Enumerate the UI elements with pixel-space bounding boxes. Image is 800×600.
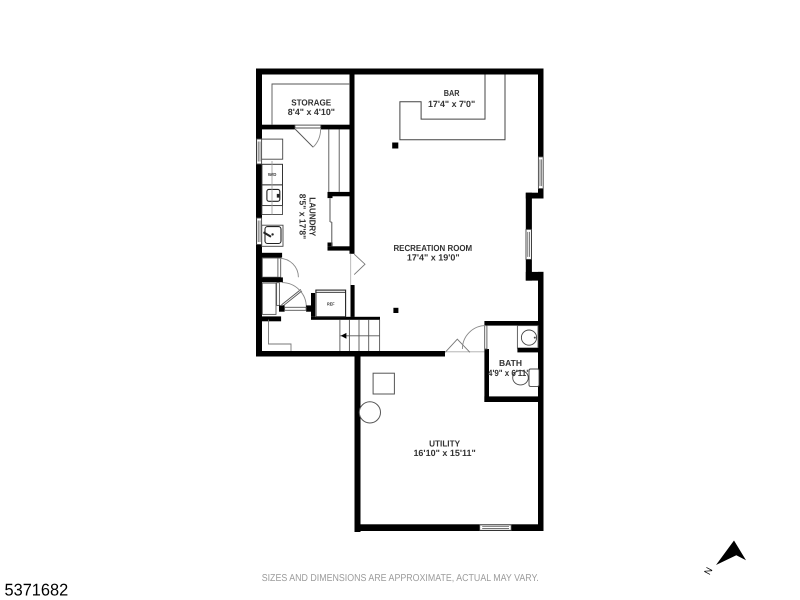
svg-text:5371682: 5371682 <box>5 581 69 600</box>
svg-text:4'9" x 6'11": 4'9" x 6'11" <box>488 368 530 378</box>
svg-text:LAUNDRY: LAUNDRY <box>307 197 317 236</box>
svg-text:8'5" x 17'8": 8'5" x 17'8" <box>298 194 308 240</box>
svg-text:8'4" x 4'10": 8'4" x 4'10" <box>288 107 335 117</box>
svg-text:17'4" x 7'0": 17'4" x 7'0" <box>428 99 475 109</box>
svg-text:RECREATION ROOM: RECREATION ROOM <box>393 243 472 253</box>
svg-text:BAR: BAR <box>444 88 460 98</box>
svg-text:SIZES AND DIMENSIONS ARE APPRO: SIZES AND DIMENSIONS ARE APPROXIMATE, AC… <box>262 573 539 584</box>
svg-text:REF: REF <box>327 301 335 306</box>
svg-text:BATH: BATH <box>499 358 522 368</box>
svg-text:17'4" x 19'0": 17'4" x 19'0" <box>407 253 460 263</box>
svg-text:STORAGE: STORAGE <box>291 97 331 107</box>
svg-text:16'10" x 15'11": 16'10" x 15'11" <box>413 448 475 458</box>
